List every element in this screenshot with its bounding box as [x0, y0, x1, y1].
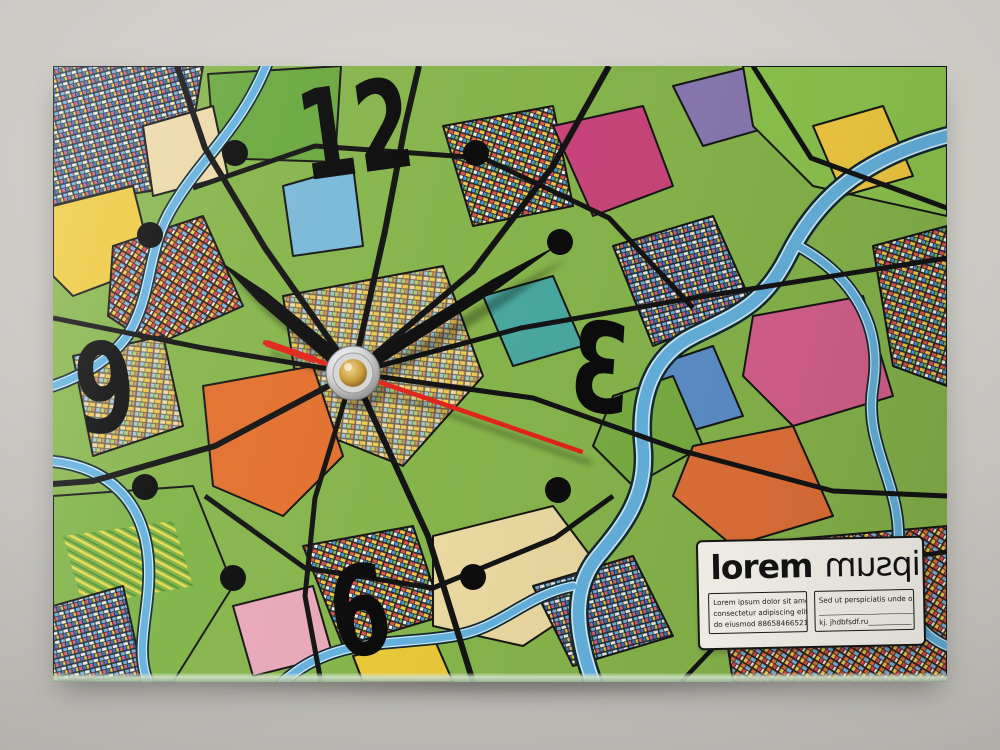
hour-dot-4 [545, 477, 571, 503]
hour-dot-11 [222, 140, 248, 166]
hour-dot-8 [132, 474, 158, 500]
photo-backdrop: 12 3 6 9 [0, 0, 1000, 750]
numeral-9: 9 [69, 316, 142, 464]
hour-dot-7 [220, 565, 246, 591]
label-right-box: Sed ut perspiciatis unde omnis _________… [814, 589, 915, 633]
label-boxes: Lorem ipsum dolor sit amet, consectetur … [708, 589, 915, 635]
glass-bottom-edge [53, 673, 947, 682]
hour-dot-5 [460, 564, 486, 590]
center-hub [326, 346, 380, 400]
label-right-line-3: kj. jhdbfsdf.ru____________ . [819, 615, 910, 628]
label-left-line-3: do eiusmod 88658466521 /// [714, 618, 803, 631]
hour-dot-1 [463, 140, 489, 166]
numeral-12: 12 [289, 66, 422, 210]
hour-dot-2 [547, 229, 573, 255]
label-title: lorem ipsum [707, 544, 914, 588]
brand-label: lorem ipsum Lorem ipsum dolor sit amet, … [696, 536, 926, 651]
label-title-mirrored: ipsum [825, 544, 921, 586]
numeral-3-mirrored: 3 [566, 295, 635, 446]
glass-map-clock: 12 3 6 9 [53, 66, 947, 682]
label-title-bold: lorem [710, 546, 813, 588]
hour-dot-10 [137, 222, 163, 248]
label-left-box: Lorem ipsum dolor sit amet, consectetur … [708, 591, 807, 635]
